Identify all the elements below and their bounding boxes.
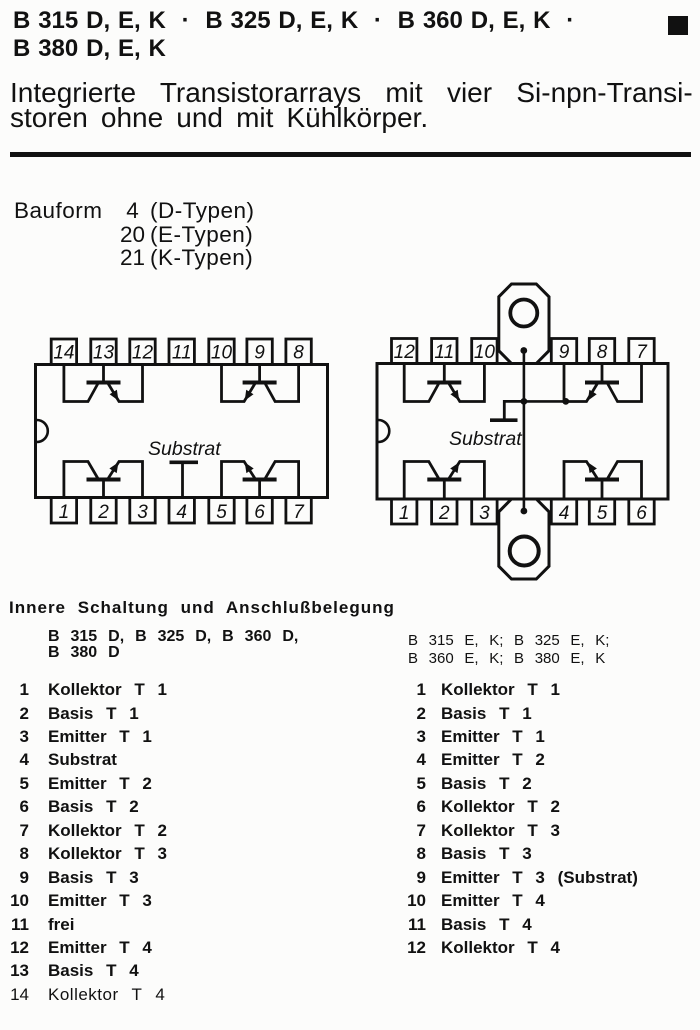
svg-text:12: 12 <box>132 343 154 364</box>
svg-text:2: 2 <box>438 503 450 524</box>
svg-text:4: 4 <box>559 503 570 524</box>
svg-text:10: 10 <box>474 342 496 363</box>
svg-text:11: 11 <box>434 342 454 363</box>
svg-text:1: 1 <box>399 503 410 524</box>
svg-text:4: 4 <box>176 502 187 523</box>
svg-text:10: 10 <box>211 343 233 364</box>
svg-text:8: 8 <box>597 342 608 363</box>
svg-text:6: 6 <box>636 503 647 524</box>
svg-text:7: 7 <box>636 342 648 363</box>
svg-text:9: 9 <box>254 343 265 364</box>
svg-text:12: 12 <box>394 342 416 363</box>
svg-text:7: 7 <box>293 502 305 523</box>
svg-text:3: 3 <box>479 503 490 524</box>
svg-text:6: 6 <box>254 502 265 523</box>
svg-text:2: 2 <box>97 502 109 523</box>
svg-text:Substrat: Substrat <box>449 428 523 450</box>
svg-text:14: 14 <box>53 343 74 364</box>
svg-text:1: 1 <box>59 502 70 523</box>
svg-text:5: 5 <box>597 503 608 524</box>
svg-text:9: 9 <box>559 342 570 363</box>
svg-text:8: 8 <box>293 343 304 364</box>
svg-text:3: 3 <box>137 502 148 523</box>
svg-text:5: 5 <box>216 502 227 523</box>
svg-text:11: 11 <box>172 343 192 364</box>
svg-text:13: 13 <box>93 343 115 364</box>
svg-text:Substrat: Substrat <box>148 438 222 460</box>
